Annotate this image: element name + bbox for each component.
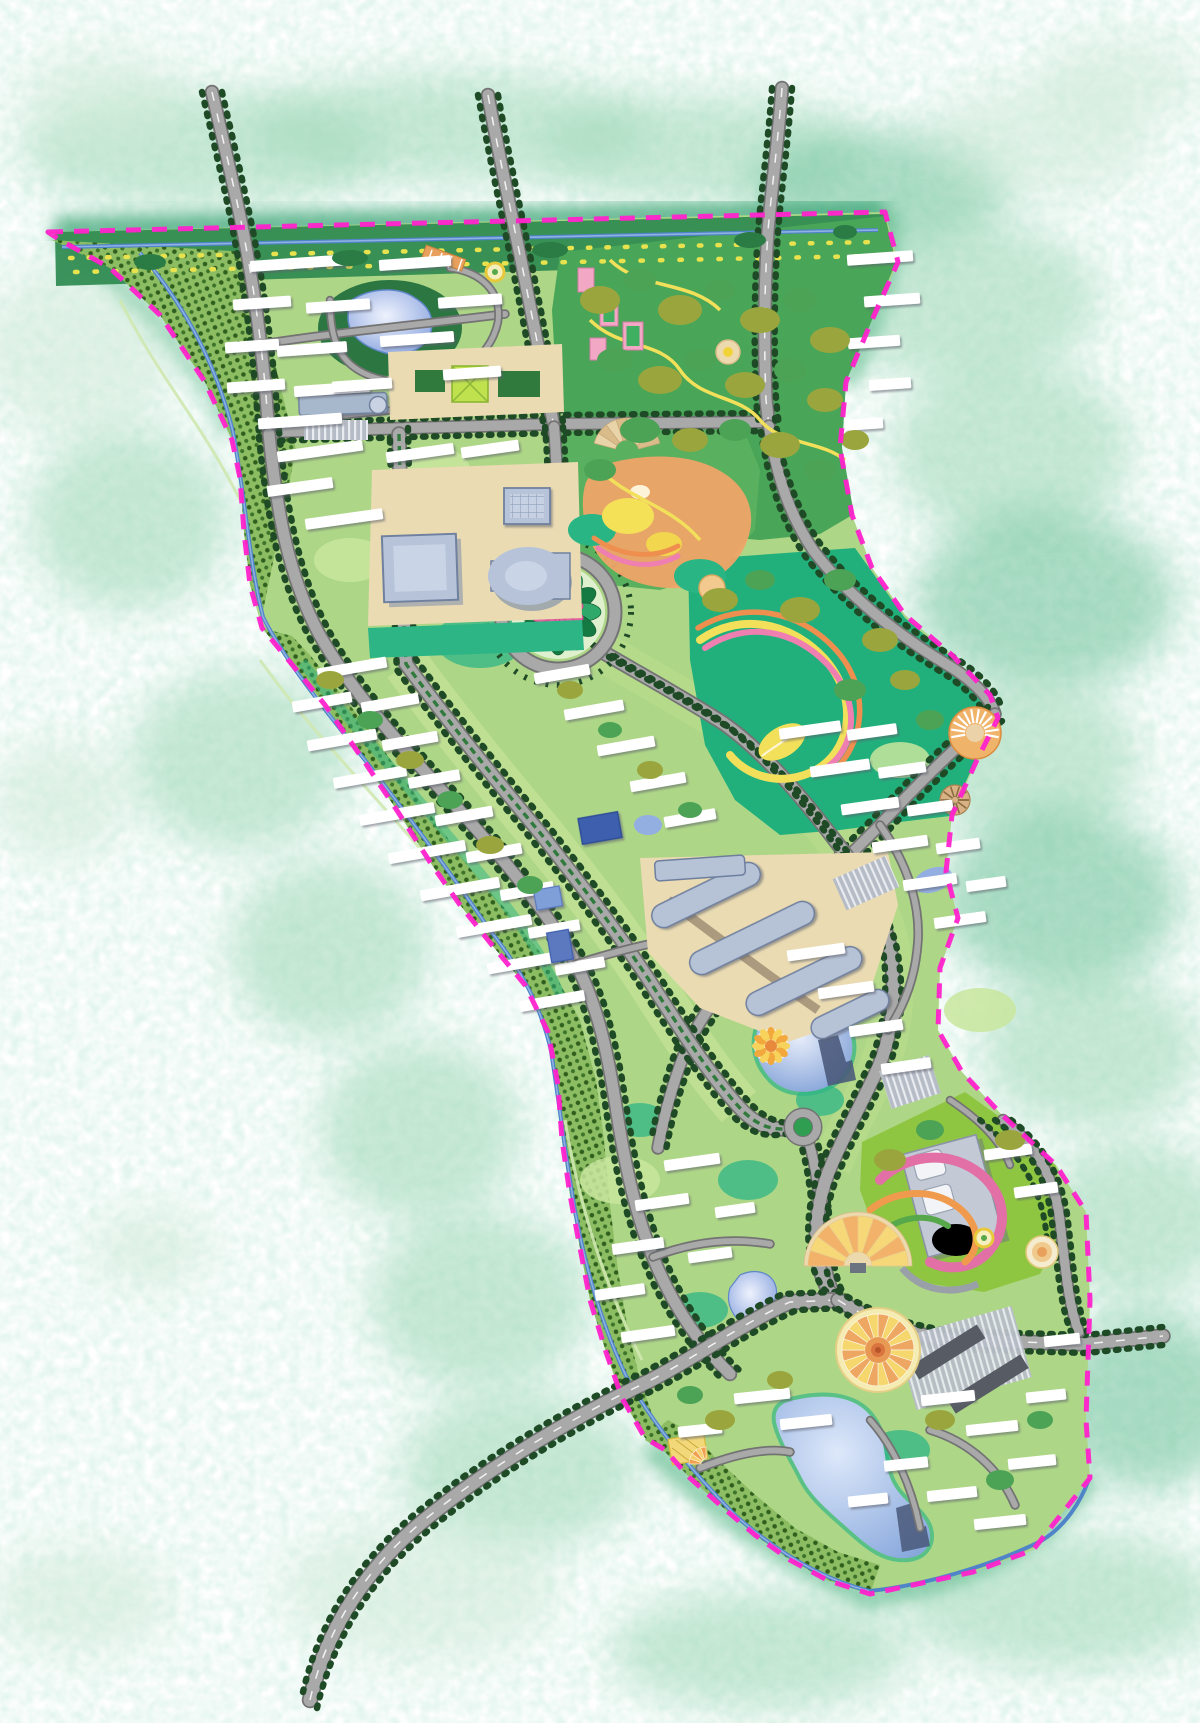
- plaza-green-rect-2: [498, 371, 540, 397]
- master-plan-canvas: [0, 0, 1200, 1723]
- plaza-green-rect-1: [415, 370, 445, 392]
- civic-bigbox-roof: [393, 544, 447, 592]
- bus-terminal-loop: [370, 397, 387, 414]
- civic-gym-roof-grid: [510, 494, 544, 518]
- mandala-core: [875, 1347, 881, 1353]
- sunburst-east-center: [966, 724, 984, 742]
- theater-roof: [505, 561, 547, 591]
- fountain-ring-se-center: [981, 1235, 987, 1241]
- roundabout-small-green: [794, 1118, 812, 1136]
- ne-park-circle-center: [723, 347, 733, 357]
- amphitheater-stage: [850, 1263, 866, 1273]
- site-master-plan-map: [0, 0, 1200, 1723]
- tennis-court-4-green: [627, 326, 640, 346]
- lake-sunflower-center: [765, 1040, 777, 1052]
- boulevard-pond: [634, 815, 662, 835]
- fountain-plaza-nw-center: [492, 269, 498, 275]
- concentric-plaza-se-core: [1037, 1247, 1047, 1257]
- tower-blue-3: [547, 929, 574, 962]
